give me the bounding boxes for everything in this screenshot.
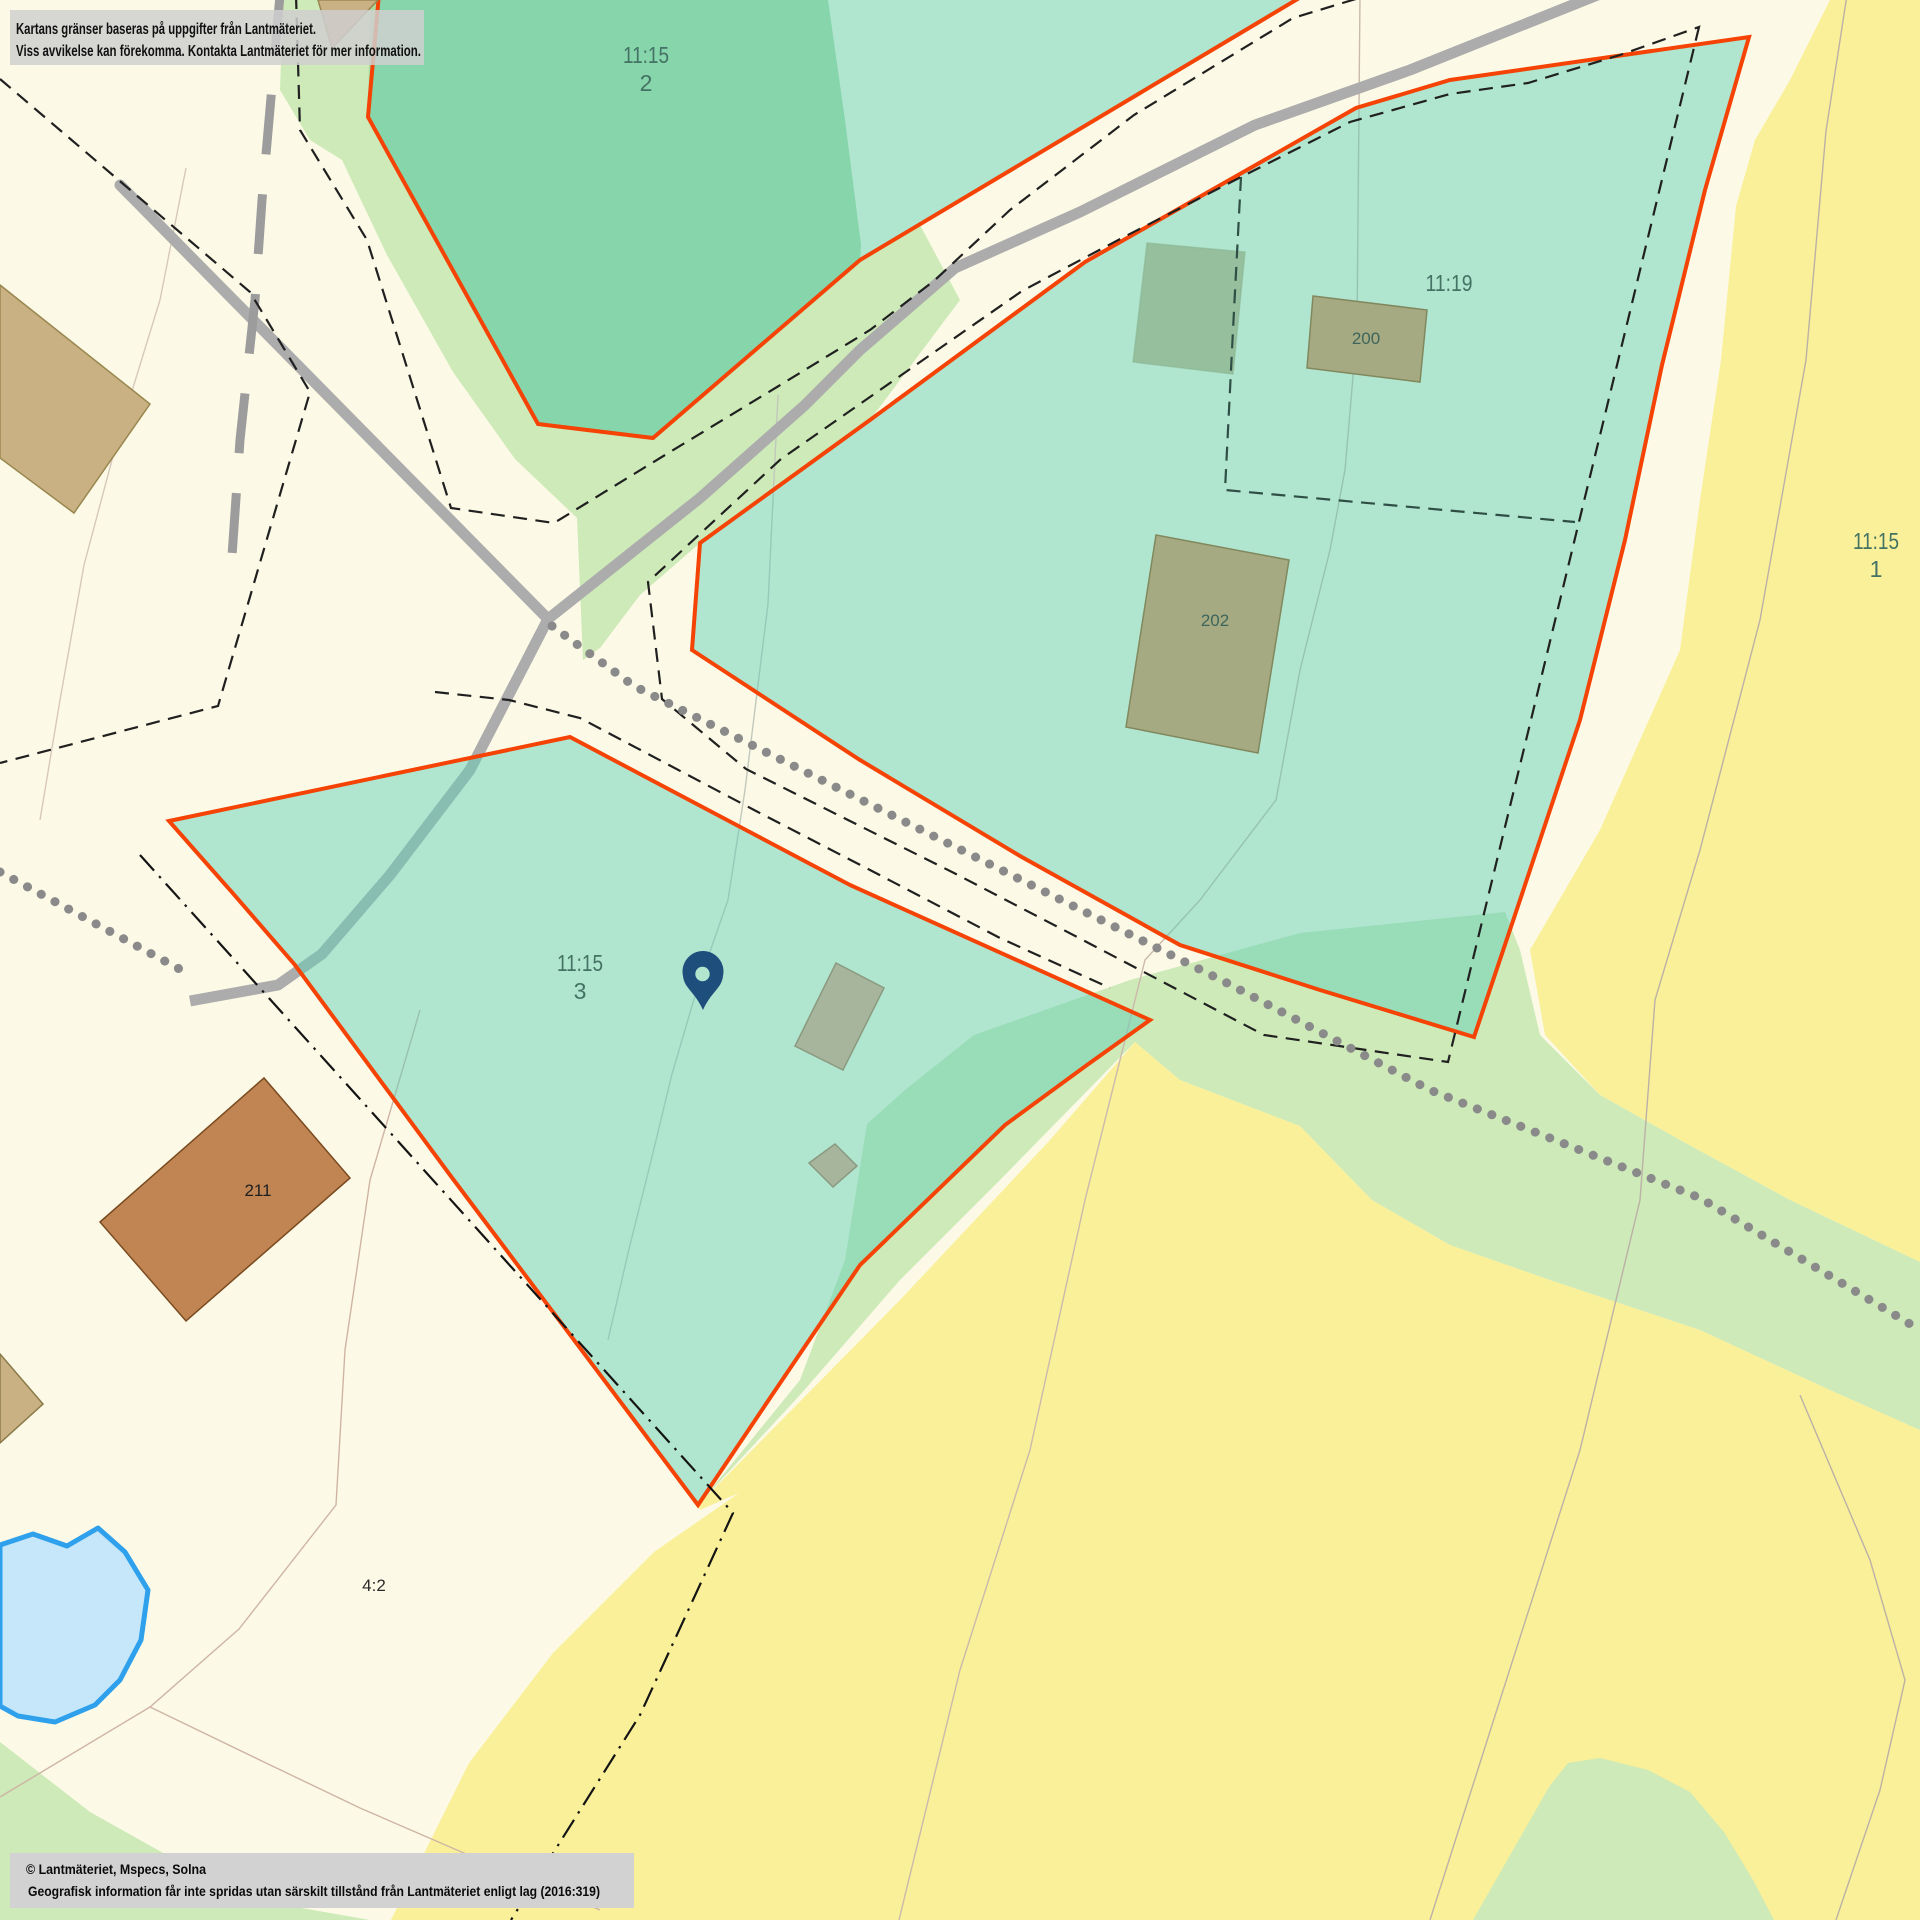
svg-text:© Lantmäteriet, Mspecs, Solna: © Lantmäteriet, Mspecs, Solna — [26, 1861, 206, 1877]
svg-text:11:19: 11:19 — [1426, 270, 1473, 296]
svg-text:202: 202 — [1201, 611, 1229, 630]
svg-text:11:15: 11:15 — [623, 42, 669, 68]
svg-text:211: 211 — [244, 1181, 271, 1200]
svg-text:3: 3 — [574, 978, 587, 1004]
svg-text:Kartans gränser baseras på upp: Kartans gränser baseras på uppgifter frå… — [16, 20, 316, 38]
svg-text:11:15: 11:15 — [557, 950, 603, 976]
svg-text:4:2: 4:2 — [362, 1576, 386, 1595]
svg-text:Geografisk information får int: Geografisk information får inte spridas … — [28, 1883, 600, 1899]
svg-text:1: 1 — [1870, 556, 1883, 582]
svg-text:200: 200 — [1352, 329, 1380, 348]
svg-text:11:15: 11:15 — [1853, 528, 1899, 554]
svg-text:Viss avvikelse kan förekomma.: Viss avvikelse kan förekomma. Kontakta L… — [16, 43, 421, 60]
svg-text:2: 2 — [640, 70, 653, 96]
